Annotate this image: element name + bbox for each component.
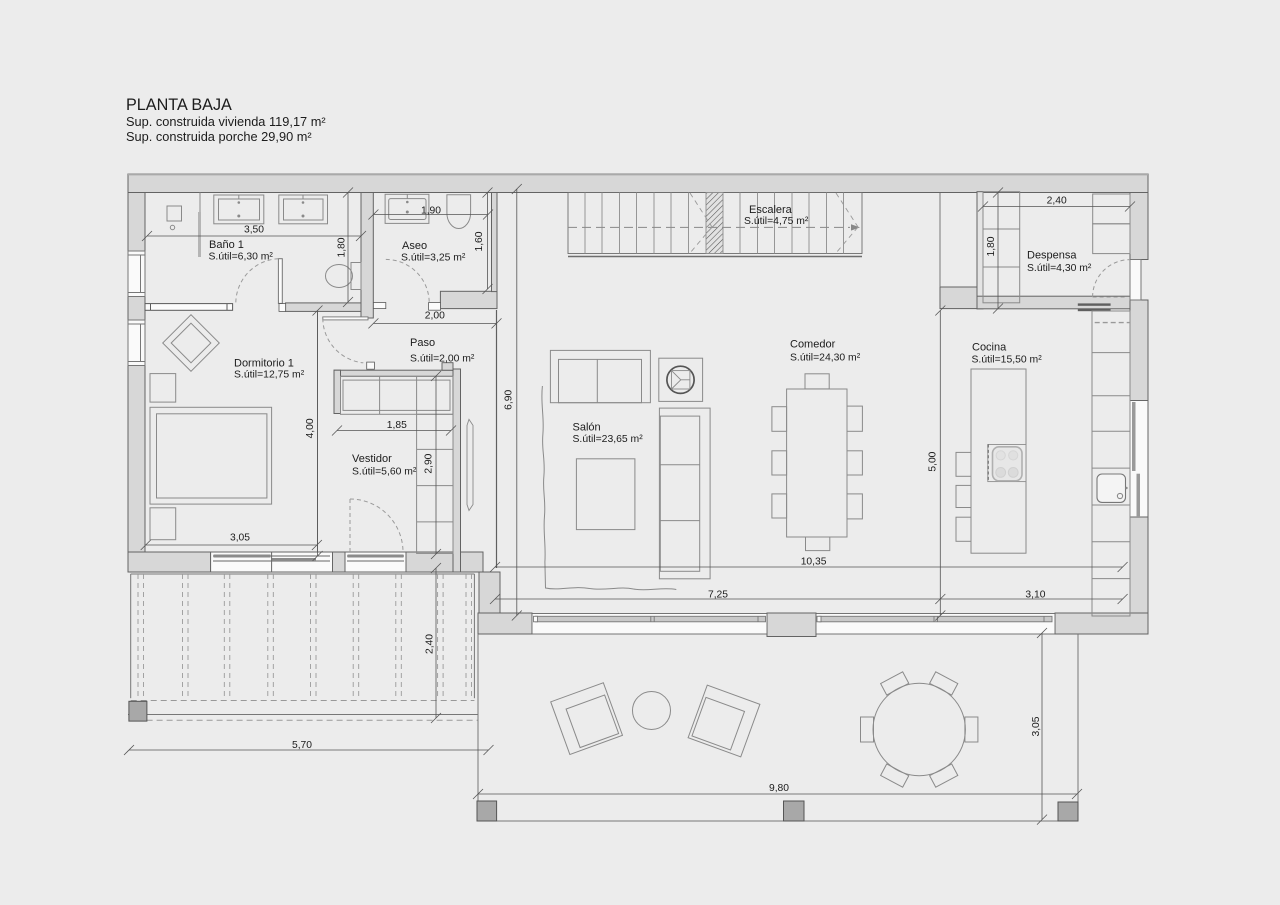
svg-text:9,80: 9,80: [769, 783, 789, 794]
svg-text:1,80: 1,80: [986, 236, 997, 256]
svg-text:7,25: 7,25: [708, 589, 728, 600]
svg-text:1,80: 1,80: [337, 237, 348, 257]
svg-text:S.útil=4,30 m²: S.útil=4,30 m²: [1027, 263, 1092, 274]
svg-text:Baño 1: Baño 1: [209, 239, 244, 251]
svg-text:6,90: 6,90: [504, 390, 515, 410]
svg-text:Dormitorio 1: Dormitorio 1: [234, 358, 294, 370]
svg-text:S.útil=2,00 m²: S.útil=2,00 m²: [410, 354, 475, 365]
svg-text:10,35: 10,35: [801, 557, 827, 568]
svg-text:Despensa: Despensa: [1027, 250, 1077, 262]
svg-text:Escalera: Escalera: [749, 204, 793, 216]
svg-text:S.útil=3,25 m²: S.útil=3,25 m²: [401, 253, 466, 264]
svg-text:Comedor: Comedor: [790, 339, 836, 351]
svg-text:S.útil=6,30 m²: S.útil=6,30 m²: [209, 252, 274, 263]
svg-text:3,05: 3,05: [230, 533, 250, 544]
svg-text:2,40: 2,40: [425, 634, 436, 654]
svg-text:S.útil=23,65 m²: S.útil=23,65 m²: [573, 434, 644, 445]
svg-text:S.útil=5,60 m²: S.útil=5,60 m²: [352, 467, 417, 478]
svg-text:5,00: 5,00: [928, 451, 939, 471]
svg-text:PLANTA BAJA: PLANTA BAJA: [126, 96, 232, 114]
svg-text:Salón: Salón: [573, 422, 601, 434]
svg-text:2,90: 2,90: [424, 453, 435, 473]
svg-text:5,70: 5,70: [292, 740, 312, 751]
svg-text:S.útil=24,30 m²: S.útil=24,30 m²: [790, 353, 861, 364]
svg-text:2,40: 2,40: [1047, 196, 1067, 207]
svg-text:4,00: 4,00: [305, 418, 316, 438]
svg-text:Vestidor: Vestidor: [352, 453, 392, 465]
svg-text:Sup. construida porche 29,90 m: Sup. construida porche 29,90 m²: [126, 129, 312, 144]
svg-text:Paso: Paso: [410, 337, 435, 349]
svg-text:3,05: 3,05: [1031, 716, 1042, 736]
svg-text:S.útil=15,50 m²: S.útil=15,50 m²: [972, 355, 1043, 366]
svg-text:3,50: 3,50: [244, 225, 264, 236]
svg-text:1,90: 1,90: [421, 206, 441, 217]
svg-text:Cocina: Cocina: [972, 342, 1007, 354]
svg-text:S.útil=12,75 m²: S.útil=12,75 m²: [234, 370, 305, 381]
svg-text:Aseo: Aseo: [402, 240, 427, 252]
svg-text:1,60: 1,60: [474, 231, 485, 251]
svg-text:Sup. construida vivienda 119,1: Sup. construida vivienda 119,17 m²: [126, 114, 326, 129]
svg-text:2,00: 2,00: [425, 311, 445, 322]
svg-text:S.útil=4,75 m²: S.útil=4,75 m²: [744, 216, 809, 227]
svg-text:1,85: 1,85: [387, 420, 407, 431]
svg-text:3,10: 3,10: [1025, 589, 1045, 600]
